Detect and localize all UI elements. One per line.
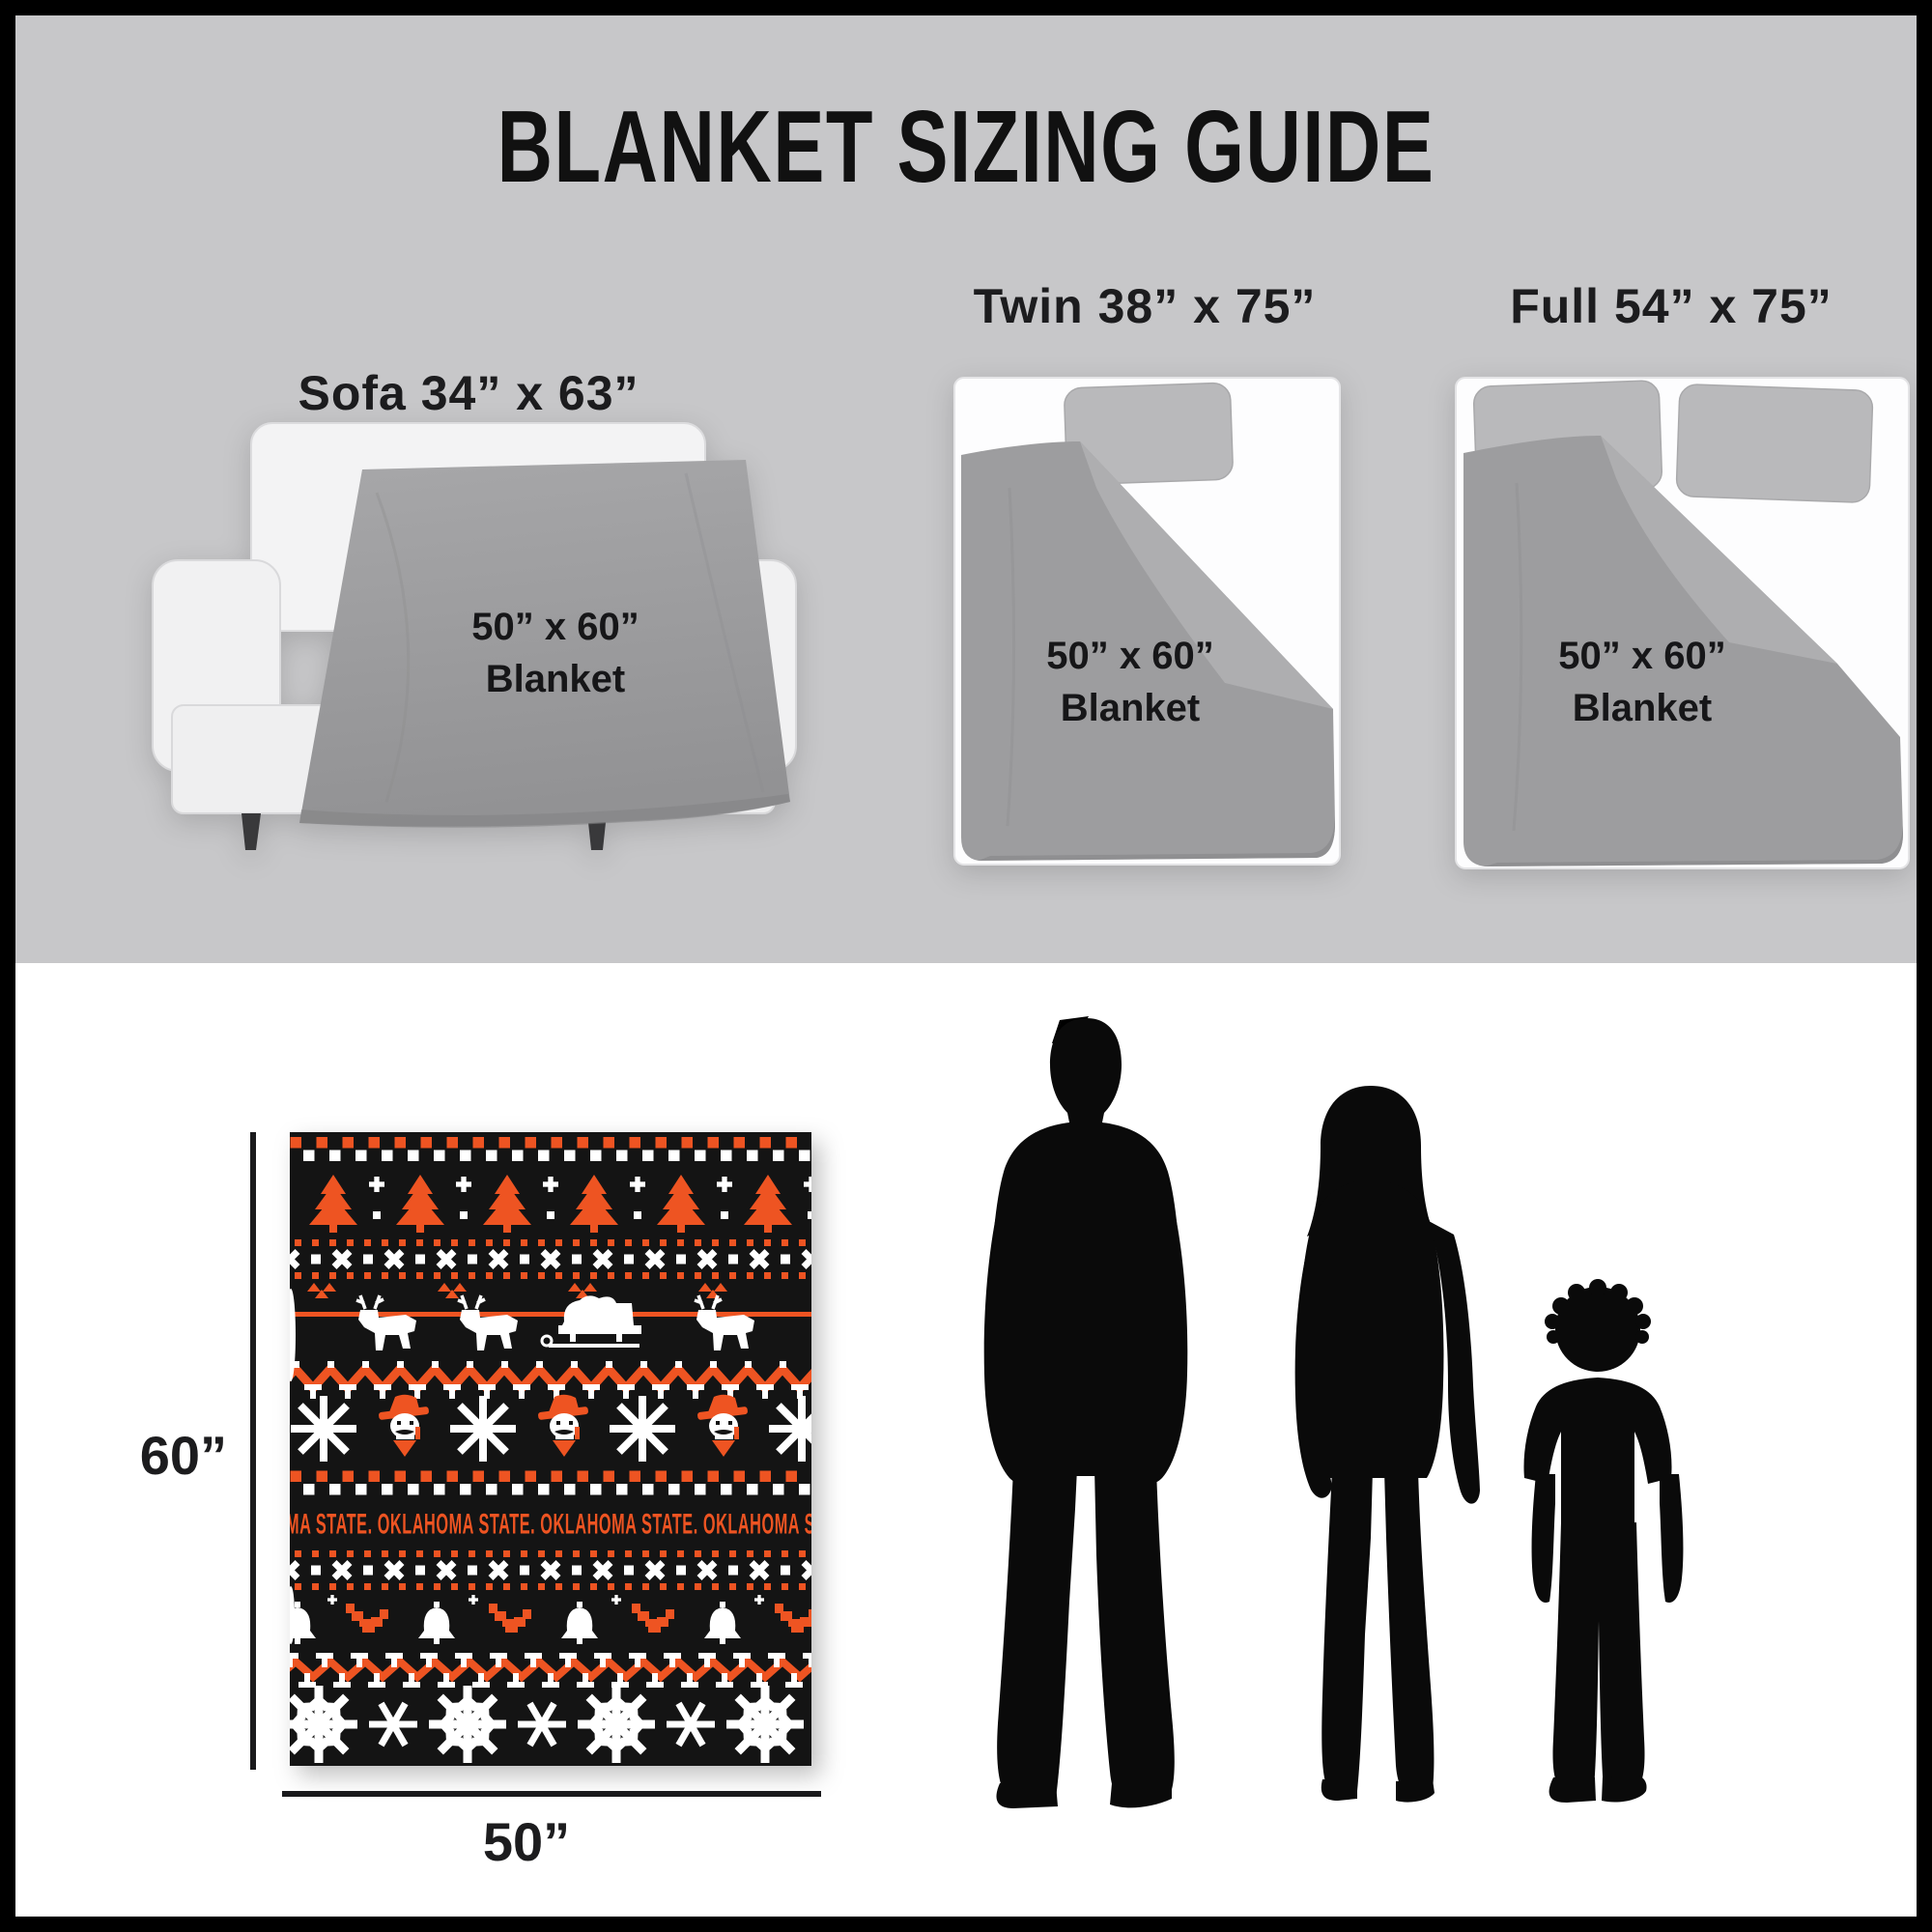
- boy-right-leg: [1599, 1522, 1645, 1789]
- sofa-caption-size: 50” x 60”: [411, 601, 700, 653]
- sofa-blanket-caption: 50” x 60” Blanket: [411, 601, 700, 705]
- height-dimension-line: [250, 1132, 256, 1770]
- twin-caption-size: 50” x 60”: [985, 630, 1275, 682]
- woman-right-foot: [1396, 1779, 1435, 1803]
- man-silhouette: [952, 1014, 1220, 1816]
- man-right-leg: [1094, 1468, 1175, 1799]
- man-left-leg: [997, 1468, 1077, 1799]
- sofa-size-label: Sofa 34” x 63”: [227, 365, 710, 421]
- ugly-sweater-blanket: MA STATE. OKLAHOMA STATE. OKLAHOMA STATE…: [290, 1132, 811, 1766]
- full-caption-size: 50” x 60”: [1497, 630, 1787, 682]
- twin-blanket-caption: 50” x 60” Blanket: [985, 630, 1275, 734]
- boy-head: [1555, 1287, 1640, 1372]
- boy-silhouette: [1503, 1277, 1696, 1824]
- twin-size-label: Twin 38” x 75”: [903, 278, 1386, 334]
- full-pillow-right: [1676, 384, 1873, 503]
- man-right-foot: [1110, 1783, 1172, 1807]
- full-size-label: Full 54” x 75”: [1430, 278, 1913, 334]
- boy-left-leg: [1552, 1522, 1599, 1789]
- woman-right-leg: [1384, 1470, 1434, 1793]
- full-bed-illustration: [1454, 372, 1913, 874]
- twin-caption-word: Blanket: [985, 682, 1275, 734]
- twin-bed-illustration: [952, 372, 1343, 869]
- man-left-foot: [996, 1783, 1058, 1808]
- sofa-leg: [241, 813, 261, 850]
- woman-left-leg: [1321, 1470, 1373, 1791]
- page-title: BLANKET SIZING GUIDE: [241, 89, 1690, 206]
- boy-left-shoe: [1549, 1777, 1596, 1803]
- woman-left-foot: [1321, 1779, 1357, 1801]
- boy-left-arm: [1532, 1474, 1555, 1603]
- full-caption-word: Blanket: [1497, 682, 1787, 734]
- sofa-caption-word: Blanket: [411, 653, 700, 705]
- boy-right-shoe: [1602, 1776, 1647, 1803]
- blanket-sizing-guide-infographic: BLANKET SIZING GUIDE Sofa 34” x 63” Twin…: [0, 0, 1932, 1932]
- height-dimension-label: 60”: [82, 1424, 227, 1487]
- boy-right-arm: [1660, 1474, 1683, 1603]
- woman-silhouette: [1259, 1084, 1486, 1818]
- brand-text-band: MA STATE. OKLAHOMA STATE. OKLAHOMA STATE…: [290, 1509, 811, 1541]
- width-dimension-label: 50”: [430, 1810, 623, 1873]
- full-blanket-caption: 50” x 60” Blanket: [1497, 630, 1787, 734]
- width-dimension-line: [282, 1791, 821, 1797]
